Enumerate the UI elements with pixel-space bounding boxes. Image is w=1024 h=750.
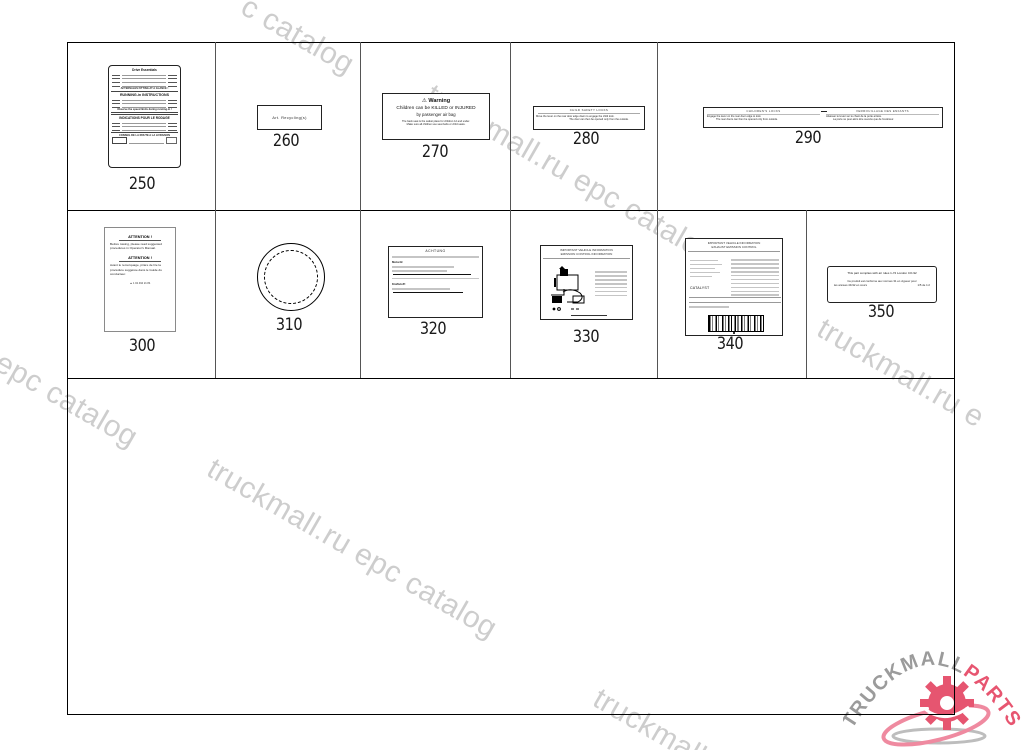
micro-line xyxy=(731,287,779,289)
decal-250-running-in-label[interactable]: Drive Essentials AFTERSALES FITTING AT A… xyxy=(108,65,181,168)
decal-section: INDICATIONS POUR LE RODAGE xyxy=(109,116,180,120)
decal-title: VERROUILLAGE DES ENFANTS xyxy=(823,109,942,113)
grid-line xyxy=(657,42,658,210)
micro-line xyxy=(112,101,177,105)
decal-banner: Observe the speed limits during running-… xyxy=(109,108,180,111)
part-ref-250[interactable]: 250 xyxy=(123,174,160,194)
rule xyxy=(111,91,178,92)
signature-line xyxy=(571,315,607,316)
grid-line xyxy=(67,378,955,379)
decal-text: Children can be KILLED or INJURED xyxy=(383,106,489,111)
grid-line xyxy=(215,42,216,210)
logo-word-parts: PARTS xyxy=(960,660,1024,731)
decal-fine-print: The door can then be opened only from th… xyxy=(554,118,644,121)
grid-line xyxy=(360,42,361,210)
grid-line xyxy=(510,42,511,210)
micro-line xyxy=(392,266,454,268)
text-lines-column xyxy=(730,257,780,298)
micro-line xyxy=(690,268,715,270)
micro-line xyxy=(595,287,627,289)
micro-line xyxy=(112,120,177,124)
text-lines-column xyxy=(689,257,725,280)
part-ref-340[interactable]: 340 xyxy=(711,334,748,354)
text-lines-column xyxy=(592,269,630,299)
small-triangle-icon: ▲ xyxy=(130,282,133,285)
decal-fine-print: Make sure all children use seat belts or… xyxy=(383,123,489,126)
part-ref-300[interactable]: 300 xyxy=(123,336,160,356)
grid-line xyxy=(215,210,216,378)
decal-320-achtung-label[interactable]: ACHTUNG Motoröl: Kraftstoff: xyxy=(388,246,483,318)
decal-part-code: 1 02 494 21 84 xyxy=(133,282,150,285)
micro-line xyxy=(112,138,177,144)
decal-fine-print: The rear doors can then be opened only f… xyxy=(716,118,820,121)
micro-line xyxy=(731,291,779,293)
part-ref-320[interactable]: 320 xyxy=(414,319,451,339)
micro-line xyxy=(392,270,447,272)
micro-line xyxy=(731,283,779,285)
micro-line xyxy=(392,288,450,290)
micro-line xyxy=(112,124,177,128)
decal-fine-print: La porte ne peut alors être ouverte que … xyxy=(833,118,939,121)
rule xyxy=(689,297,781,298)
rule xyxy=(689,302,781,303)
micro-line xyxy=(595,283,627,285)
rule xyxy=(543,258,630,259)
decal-310-ring-inner xyxy=(264,250,318,304)
micro-line xyxy=(595,295,627,297)
micro-line xyxy=(731,294,779,296)
part-ref-290[interactable]: 290 xyxy=(789,128,826,148)
rule xyxy=(111,114,178,115)
rule xyxy=(111,132,178,133)
decal-330-emission-label[interactable]: IMPORTANT VEHICLE INFORMATION EMISSION C… xyxy=(540,245,633,320)
decal-text: Avant le remorquage, prière de lire la p… xyxy=(110,263,170,276)
micro-line xyxy=(690,260,718,262)
decal-270-airbag-warning[interactable]: ⚠ Warning Children can be KILLED or INJU… xyxy=(382,93,490,140)
part-ref-330[interactable]: 330 xyxy=(567,327,604,347)
warning-triangle-icon: ⚠ xyxy=(422,98,427,104)
micro-line xyxy=(689,306,729,308)
micro-line xyxy=(392,256,479,258)
micro-line xyxy=(731,271,779,273)
micro-line xyxy=(112,79,177,83)
rule xyxy=(688,251,780,252)
decal-260-small-plate[interactable]: Art. Recycling(s) xyxy=(257,105,322,130)
decal-text: Before towing, please read suggested pro… xyxy=(110,242,170,250)
truckmall-parts-logo: TRUCKMALLPARTS xyxy=(843,633,1024,750)
micro-line xyxy=(393,274,471,275)
part-ref-260[interactable]: 260 xyxy=(267,131,304,151)
decal-title: Warning xyxy=(428,98,450,104)
part-ref-270[interactable]: 270 xyxy=(416,142,453,162)
grid-line xyxy=(806,210,807,378)
micro-line xyxy=(731,259,779,261)
decal-subtitle: EMISSION CONTROL INFORMATION xyxy=(541,252,632,256)
decal-section: Kraftstoff: xyxy=(392,282,479,286)
micro-line xyxy=(112,72,177,76)
micro-line xyxy=(731,275,779,277)
parts-diagram-canvas: c catalog truckmall.ru epc catalog l epc… xyxy=(0,0,1024,750)
micro-line xyxy=(392,278,479,280)
grid-line xyxy=(67,210,955,211)
decal-text: by passenger air bag xyxy=(383,112,489,117)
part-ref-280[interactable]: 280 xyxy=(567,129,604,149)
decal-title: ATTENTION ! xyxy=(119,256,161,262)
grid-line xyxy=(510,210,511,378)
decal-title: CHILD SAFETY LOCKS xyxy=(534,108,644,112)
micro-line xyxy=(595,275,627,277)
micro-line xyxy=(112,83,177,87)
decal-title: ACHTUNG xyxy=(389,249,482,253)
micro-line xyxy=(690,264,722,266)
micro-line xyxy=(595,291,627,293)
micro-line xyxy=(731,263,779,265)
grid-line xyxy=(360,210,361,378)
decal-banner: AFTERSALES FITTING AT A GLANCE ! xyxy=(109,87,180,90)
decal-text: 1/5 de 1:2 xyxy=(918,283,930,287)
micro-line xyxy=(112,127,177,131)
micro-line xyxy=(595,279,627,281)
decal-text: This part complies with air rules 1-72 L… xyxy=(828,271,936,275)
decal-340-catalyst-label[interactable]: IMPORTANT VEHICLE INFORMATION EXHAUST EM… xyxy=(685,238,783,336)
gear-icon xyxy=(920,676,974,730)
decal-text: Art. Recycling(s) xyxy=(272,115,306,120)
micro-line xyxy=(595,271,627,273)
micro-line xyxy=(393,292,463,293)
decal-subtitle: EXHAUST EMISSION CONTROL xyxy=(686,245,782,249)
decal-title: ATTENTION ! xyxy=(119,235,161,241)
micro-line xyxy=(690,276,712,278)
catalyst-text: CATALYST xyxy=(690,286,709,290)
micro-line xyxy=(690,272,720,274)
decal-section: Motoröl: xyxy=(392,260,479,264)
micro-line xyxy=(731,279,779,281)
decal-280-child-lock-label[interactable]: CHILD SAFETY LOCKS Move the lever on the… xyxy=(533,106,645,130)
rule xyxy=(538,113,640,114)
engine-schematic-drawing xyxy=(547,265,589,313)
barcode xyxy=(708,315,764,332)
micro-line xyxy=(731,267,779,269)
decal-300-towing-attention[interactable]: ATTENTION ! Before towing, please read s… xyxy=(104,227,176,332)
micro-line xyxy=(112,97,177,101)
stamp-box xyxy=(166,137,177,144)
decal-right-column: VERROUILLAGE DES ENFANTS Abaisser le lev… xyxy=(823,108,942,127)
decal-title: CHILDREN'S LOCKS xyxy=(704,109,823,113)
decal-text: les années 49-92 en cours xyxy=(834,283,867,287)
decal-left-column: CHILDREN'S LOCKS Engage the lever on the… xyxy=(704,108,823,127)
decal-290-child-lock-strip[interactable]: CHILDREN'S LOCKS Engage the lever on the… xyxy=(703,107,943,128)
part-ref-310[interactable]: 310 xyxy=(270,315,307,335)
stamp-box xyxy=(112,137,127,144)
decal-350-compliance-label[interactable]: This part complies with air rules 1-72 L… xyxy=(827,266,937,303)
micro-line xyxy=(112,76,177,80)
rule xyxy=(111,112,178,113)
part-ref-350[interactable]: 350 xyxy=(862,302,899,322)
grid-line xyxy=(657,210,658,378)
